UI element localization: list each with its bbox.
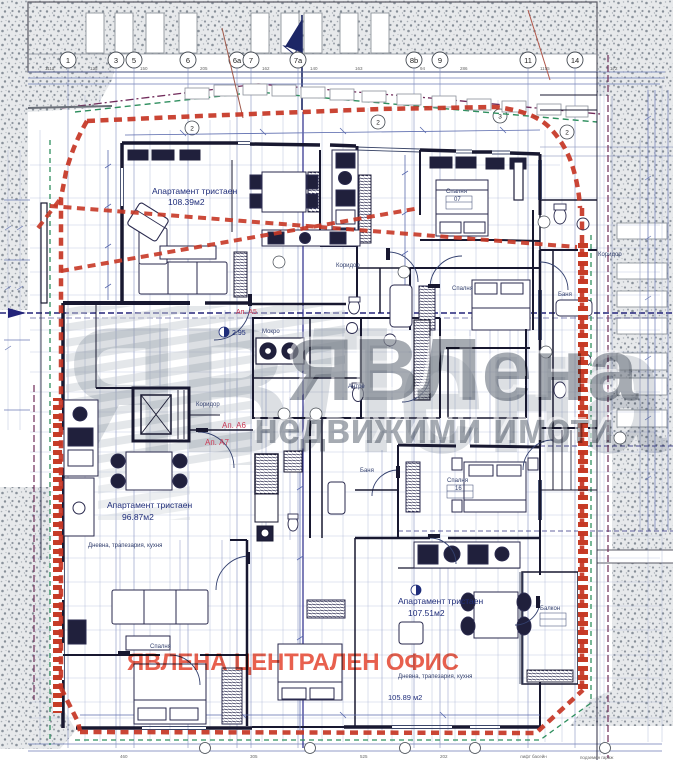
svg-text:2: 2 bbox=[190, 126, 194, 133]
svg-text:9: 9 bbox=[438, 56, 442, 65]
svg-text:1155: 1155 bbox=[540, 66, 550, 71]
svg-text:Апартамент тристаен: Апартамент тристаен bbox=[152, 186, 237, 196]
svg-text:525: 525 bbox=[360, 754, 368, 759]
svg-text:6a: 6a bbox=[233, 56, 242, 65]
svg-text:Коридор: Коридор bbox=[336, 263, 360, 269]
svg-text:3: 3 bbox=[498, 114, 502, 121]
svg-text:205: 205 bbox=[200, 66, 208, 71]
svg-text:305: 305 bbox=[250, 754, 258, 759]
svg-text:11: 11 bbox=[524, 56, 532, 65]
svg-text:07: 07 bbox=[454, 197, 461, 203]
svg-text:2: 2 bbox=[376, 120, 380, 127]
svg-text:5: 5 bbox=[132, 56, 136, 65]
svg-text:Балкон: Балкон bbox=[540, 606, 560, 612]
svg-text:Спалня: Спалня bbox=[446, 189, 467, 195]
svg-text:7: 7 bbox=[249, 56, 253, 65]
svg-text:96.87м2: 96.87м2 bbox=[122, 512, 154, 522]
svg-text:1113: 1113 bbox=[45, 66, 55, 71]
svg-text:16: 16 bbox=[455, 486, 462, 492]
svg-text:2.95: 2.95 bbox=[232, 330, 246, 337]
svg-text:Апартамент тристаен: Апартамент тристаен bbox=[398, 596, 483, 606]
svg-text:6: 6 bbox=[186, 56, 190, 65]
svg-text:286: 286 bbox=[460, 66, 468, 71]
svg-text:105.89 м2: 105.89 м2 bbox=[388, 693, 422, 702]
svg-text:1: 1 bbox=[66, 56, 70, 65]
svg-text:Ап. А7: Ап. А7 bbox=[205, 438, 229, 447]
svg-text:подземен гараж: подземен гараж bbox=[580, 755, 613, 760]
svg-text:Баня: Баня bbox=[360, 468, 374, 474]
svg-text:14: 14 bbox=[571, 56, 579, 65]
svg-text:140: 140 bbox=[310, 66, 318, 71]
svg-text:460: 460 bbox=[120, 754, 128, 759]
svg-text:162: 162 bbox=[262, 66, 270, 71]
svg-text:Коридор: Коридор bbox=[196, 402, 220, 408]
svg-text:Баня: Баня bbox=[558, 292, 572, 298]
svg-text:150: 150 bbox=[140, 66, 148, 71]
svg-text:Дневна, трапезария, кухня: Дневна, трапезария, кухня bbox=[88, 543, 162, 549]
svg-text:Мокро: Мокро bbox=[262, 329, 280, 335]
svg-text:8b: 8b bbox=[410, 56, 418, 65]
svg-text:3: 3 bbox=[114, 56, 118, 65]
svg-text:163: 163 bbox=[355, 66, 363, 71]
svg-text:94: 94 bbox=[420, 66, 426, 71]
svg-text:2: 2 bbox=[565, 130, 569, 137]
svg-text:Апартамент тристаен: Апартамент тристаен bbox=[107, 500, 192, 510]
svg-text:108.39м2: 108.39м2 bbox=[168, 197, 205, 207]
svg-text:Ап. А6: Ап. А6 bbox=[222, 421, 246, 430]
svg-text:Антре: Антре bbox=[348, 384, 365, 390]
svg-text:172: 172 bbox=[610, 66, 618, 71]
svg-text:Ап. А5: Ап. А5 bbox=[236, 309, 257, 316]
svg-text:недвижими имоти: недвижими имоти bbox=[254, 404, 614, 453]
svg-text:Коридор: Коридор bbox=[598, 252, 622, 258]
svg-text:125: 125 bbox=[90, 66, 98, 71]
svg-text:7a: 7a bbox=[294, 56, 303, 65]
svg-text:ЯВЛЕНА ЦЕНТРАЛЕН ОФИС: ЯВЛЕНА ЦЕНТРАЛЕН ОФИС bbox=[127, 649, 459, 676]
svg-text:Спалня: Спалня bbox=[452, 286, 473, 292]
svg-text:202: 202 bbox=[440, 754, 448, 759]
svg-text:лифт басейн: лифт басейн bbox=[520, 753, 547, 759]
svg-text:107.51м2: 107.51м2 bbox=[408, 608, 445, 618]
svg-text:Спалня: Спалня bbox=[447, 478, 468, 484]
